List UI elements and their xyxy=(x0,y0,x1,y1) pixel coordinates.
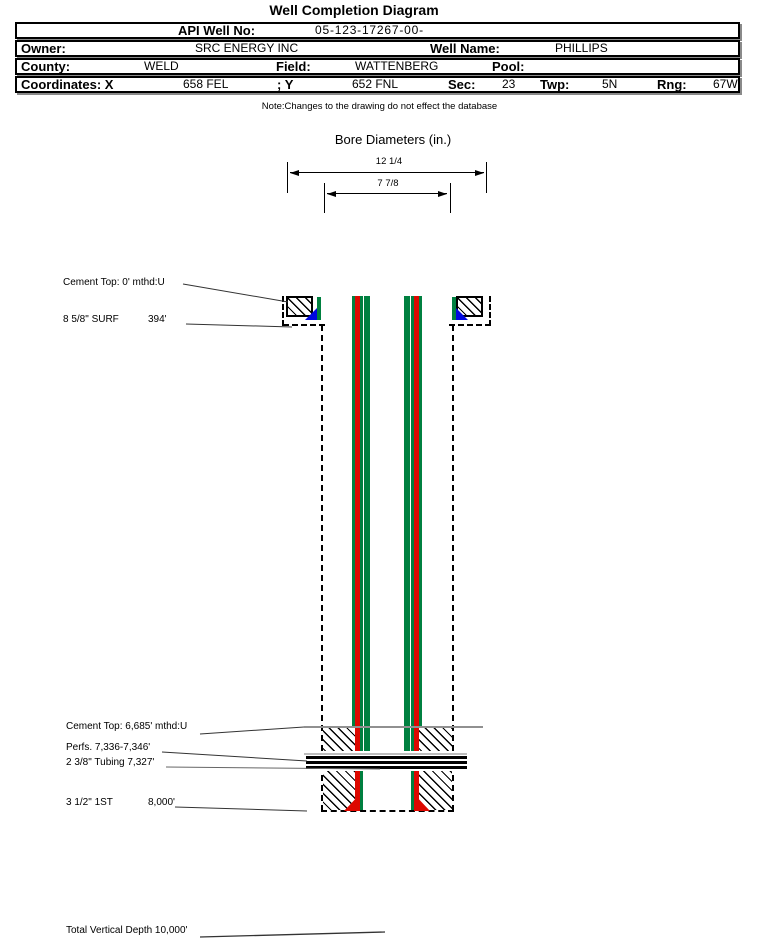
production-string-label: 3 1/2" 1ST xyxy=(66,797,113,808)
coord-x-value: 658 FEL xyxy=(183,78,228,91)
surface-casing-inner-wall-left xyxy=(317,297,321,320)
cement-top-surface-label: Cement Top: 0' mthd:U xyxy=(63,277,165,288)
inner-dim-tick-left xyxy=(324,183,325,213)
owner-value: SRC ENERGY INC xyxy=(195,42,298,55)
outer-bore-diameter-label: 12 1/4 xyxy=(339,156,439,167)
coordinates-label: Coordinates: X xyxy=(21,78,113,91)
field-value: WATTENBERG xyxy=(355,60,438,73)
header-row-coordinates: Coordinates: X 658 FEL ; Y 652 FNL Sec: … xyxy=(15,76,740,93)
borehole-bottom xyxy=(321,810,454,812)
outer-dim-line xyxy=(290,172,484,173)
coord-y-value: 652 FNL xyxy=(352,78,398,91)
twp-label: Twp: xyxy=(540,78,569,91)
inner-dim-line xyxy=(327,193,447,194)
borehole-ledge-right xyxy=(449,324,491,326)
header-row-owner: Owner: SRC ENERGY INC Well Name: PHILLIP… xyxy=(15,40,740,57)
twp-value: 5N xyxy=(602,78,617,91)
owner-label: Owner: xyxy=(21,42,66,55)
perfs-label: Perfs. 7,336-7,346' xyxy=(66,742,150,753)
well-name-label: Well Name: xyxy=(430,42,500,55)
api-value: 05-123-17267-00- xyxy=(315,24,424,37)
tubing-label: 2 3/8" Tubing 7,327' xyxy=(66,757,154,768)
first-string-casing-right xyxy=(414,296,419,811)
inner-bore-diameter-label: 7 7/8 xyxy=(338,178,438,189)
rng-value: 67W xyxy=(713,78,738,91)
borehole-outer-wall-right xyxy=(489,296,491,326)
perforation-line-1 xyxy=(306,756,467,759)
surface-casing-label: 8 5/8" SURF xyxy=(63,314,119,325)
database-note: Note:Changes to the drawing do not effec… xyxy=(0,101,759,112)
sec-label: Sec: xyxy=(448,78,475,91)
page-title: Well Completion Diagram xyxy=(244,2,464,18)
perforation-line-2 xyxy=(306,761,467,764)
perforation-line-3 xyxy=(306,766,467,769)
borehole-inner-wall-right xyxy=(452,325,454,811)
outer-dim-tick-right xyxy=(486,162,487,193)
county-value: WELD xyxy=(144,60,179,73)
inner-dim-tick-right xyxy=(450,183,451,213)
total-vertical-depth-label: Total Vertical Depth 10,000' xyxy=(66,925,187,936)
tubing-line-right xyxy=(404,296,410,756)
pool-label: Pool: xyxy=(492,60,525,73)
coord-y-label: ; Y xyxy=(277,78,293,91)
cement-top-line xyxy=(304,726,483,728)
field-label: Field: xyxy=(276,60,311,73)
inner-dim-arrow-left-icon xyxy=(327,191,336,197)
sec-value: 23 xyxy=(502,78,515,91)
perforation-line-gray xyxy=(304,753,467,755)
borehole-outer-wall-left xyxy=(282,296,284,326)
header-row-api: API Well No: 05-123-17267-00- xyxy=(15,22,740,39)
inner-dim-arrow-right-icon xyxy=(438,191,447,197)
surface-casing-cement-box-left xyxy=(286,296,313,317)
well-name-value: PHILLIPS xyxy=(555,42,608,55)
rng-label: Rng: xyxy=(657,78,687,91)
cement-top-production-label: Cement Top: 6,685' mthd:U xyxy=(66,721,187,732)
county-label: County: xyxy=(21,60,70,73)
first-string-casing-left xyxy=(355,296,360,811)
surface-casing-inner-wall-right xyxy=(452,297,456,320)
well-completion-diagram-page: Well Completion Diagram API Well No: 05-… xyxy=(0,0,759,943)
outer-dim-tick-left xyxy=(287,162,288,193)
borehole-ledge-left xyxy=(283,324,325,326)
header-row-county: County: WELD Field: WATTENBERG Pool: xyxy=(15,58,740,75)
outer-dim-arrow-right-icon xyxy=(475,170,484,176)
surface-casing-depth-label: 394' xyxy=(148,314,167,325)
api-label: API Well No: xyxy=(178,24,255,37)
outer-dim-arrow-left-icon xyxy=(290,170,299,176)
production-string-depth-label: 8,000' xyxy=(148,797,175,808)
tubing-line-left xyxy=(364,296,370,756)
bore-diameters-title: Bore Diameters (in.) xyxy=(283,132,503,147)
